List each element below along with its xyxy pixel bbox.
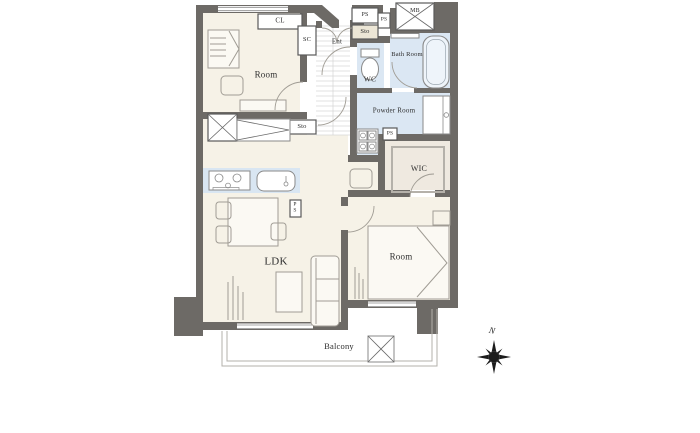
floorplan-drawing [0, 0, 700, 433]
refrigerator-space [208, 114, 237, 141]
room2-label: Room [390, 253, 413, 262]
washbasin-icon [423, 96, 450, 134]
balcony-label: Balcony [324, 342, 354, 351]
entrance-label: Ent [332, 39, 342, 46]
ps-kitchen-label: PS [292, 203, 298, 214]
ps2-label: PS [381, 17, 388, 23]
shoe-cupboard-label: SC [303, 37, 311, 44]
bathroom-label: Bath Room [391, 52, 423, 59]
ps3-label: PS [387, 131, 394, 137]
ldk-label: LDK [264, 257, 287, 268]
sto-top-label: Sto [360, 29, 369, 36]
wic-label: WIC [411, 165, 427, 173]
coffee-table [276, 272, 302, 312]
compass-rose [477, 340, 511, 374]
low-cabinet [240, 100, 286, 111]
kitchen-stove-icon [209, 171, 250, 190]
kitchen-sink-icon [257, 171, 295, 191]
meter-box-label: MB [410, 8, 420, 14]
counter-storage [237, 119, 290, 141]
single-bed [208, 30, 239, 68]
closet-label: CL [275, 18, 284, 25]
room1-label: Room [255, 71, 278, 80]
sofa [311, 256, 339, 326]
washing-machine-icon [357, 129, 378, 153]
wc-label: WC [364, 75, 376, 83]
floorplan-canvas: Room CL SC Ent PS PS Sto MB WC Bath Room… [0, 0, 700, 433]
ps1-label: PS [361, 12, 368, 18]
sto-mid-label: Sto [297, 124, 306, 131]
double-bed [368, 226, 449, 299]
powder-room-label: Powder Room [373, 108, 415, 115]
